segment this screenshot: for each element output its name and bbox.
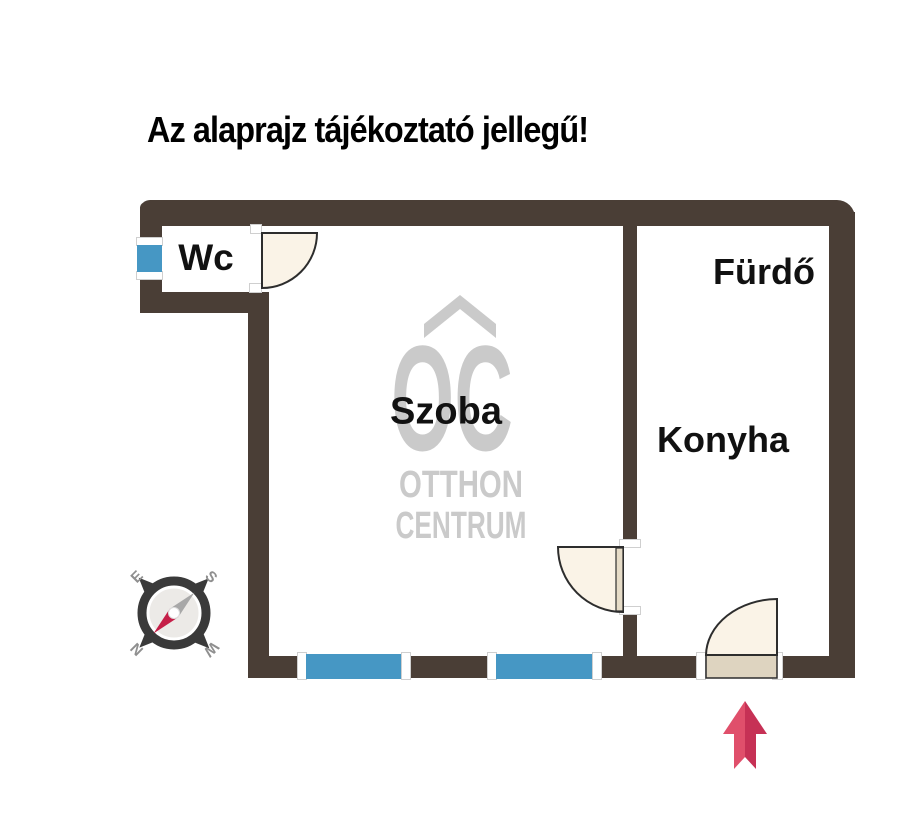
room-label-szoba: Szoba <box>390 391 502 434</box>
room-label-konyha: Konyha <box>657 419 789 461</box>
room-label-furdo: Fürdő <box>713 251 815 293</box>
room-labels: Wc Szoba Fürdő Konyha <box>0 0 920 840</box>
floor-plan-page: Az alaprajz tájékoztató jellegű! <box>0 0 920 840</box>
room-label-wc: Wc <box>178 237 234 279</box>
